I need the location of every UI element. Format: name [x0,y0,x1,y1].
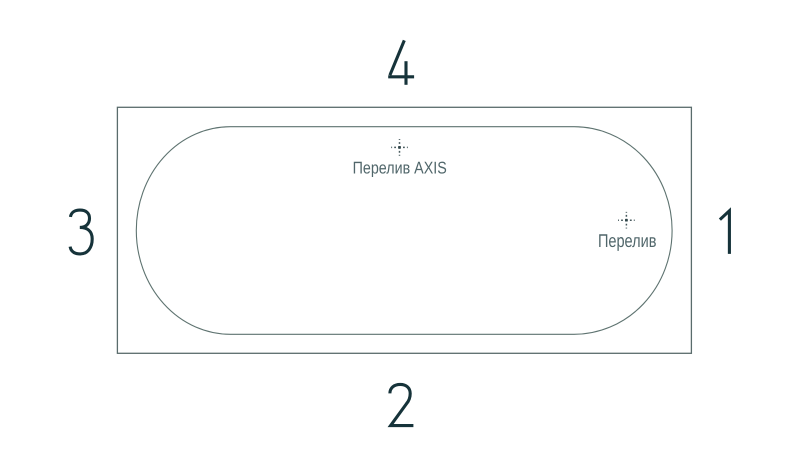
svg-text:Перелив AXIS: Перелив AXIS [353,158,447,177]
svg-text:Перелив: Перелив [598,230,657,251]
